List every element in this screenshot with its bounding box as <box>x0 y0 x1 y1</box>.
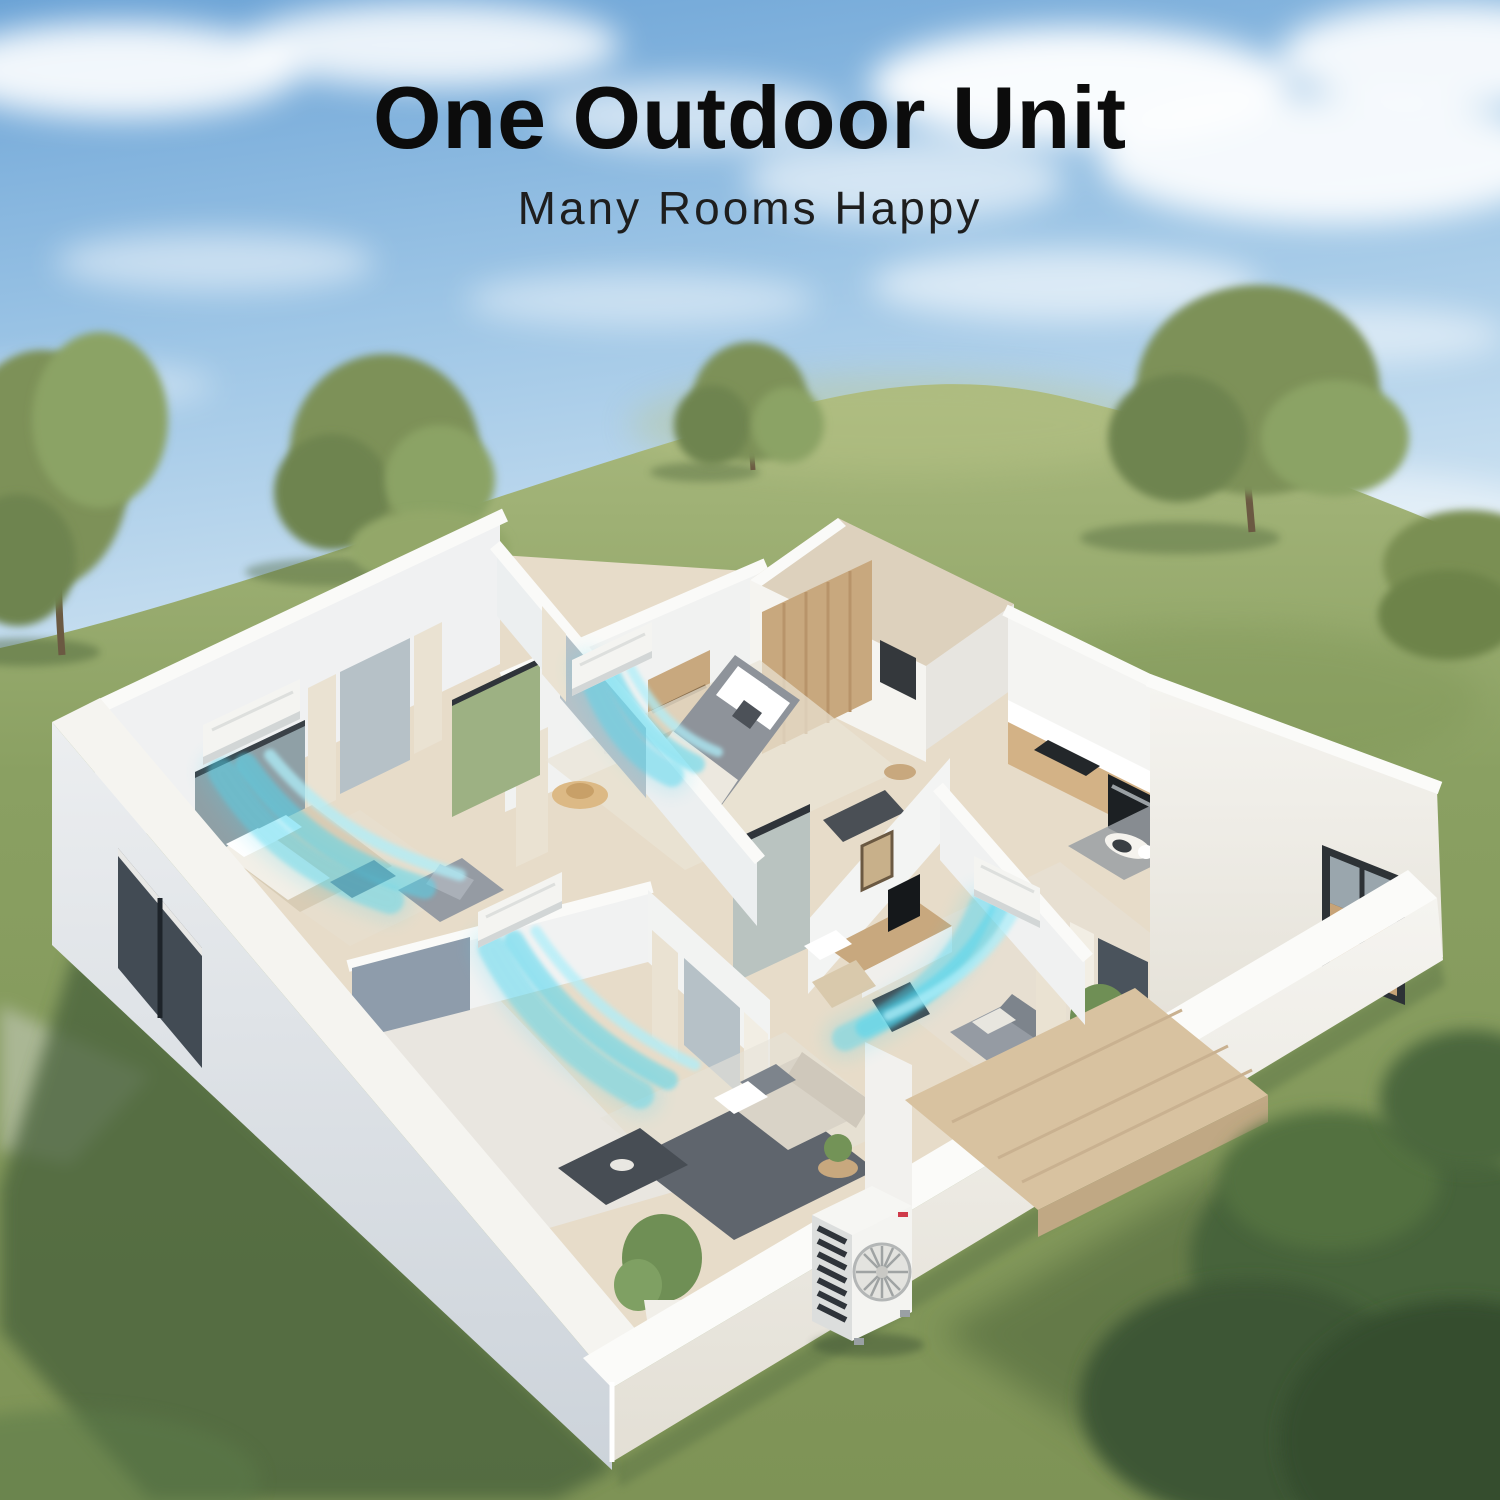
fan-grille <box>854 1244 910 1300</box>
page-subtitle: Many Rooms Happy <box>0 181 1500 235</box>
brand-mark <box>898 1212 908 1217</box>
unit-foot <box>854 1338 864 1345</box>
unit-foot <box>900 1310 910 1317</box>
page-title: One Outdoor Unit <box>0 72 1500 164</box>
curtain <box>414 622 442 754</box>
marketing-image: One Outdoor Unit Many Rooms Happy <box>0 0 1500 1500</box>
side-table <box>884 764 916 780</box>
straw-hat <box>552 781 608 809</box>
